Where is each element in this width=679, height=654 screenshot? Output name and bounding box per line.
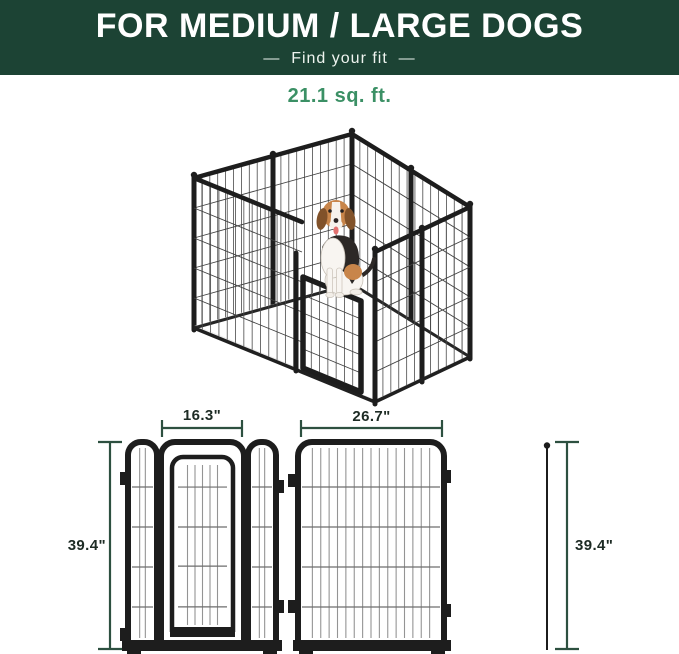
panel-width-label: 26.7" — [301, 408, 442, 425]
door-panel-drawing — [120, 442, 284, 654]
height-label-left: 39.4" — [56, 537, 106, 554]
product-infographic: FOR MEDIUM / LARGE DOGS — Find your fit … — [0, 0, 679, 654]
connecting-rod-drawing — [544, 442, 550, 650]
product-illustration — [0, 0, 679, 654]
playpen-isometric — [191, 128, 473, 404]
height-label-right: 39.4" — [575, 537, 625, 554]
door-width-label: 16.3" — [162, 407, 242, 424]
large-panel-drawing — [288, 442, 451, 654]
